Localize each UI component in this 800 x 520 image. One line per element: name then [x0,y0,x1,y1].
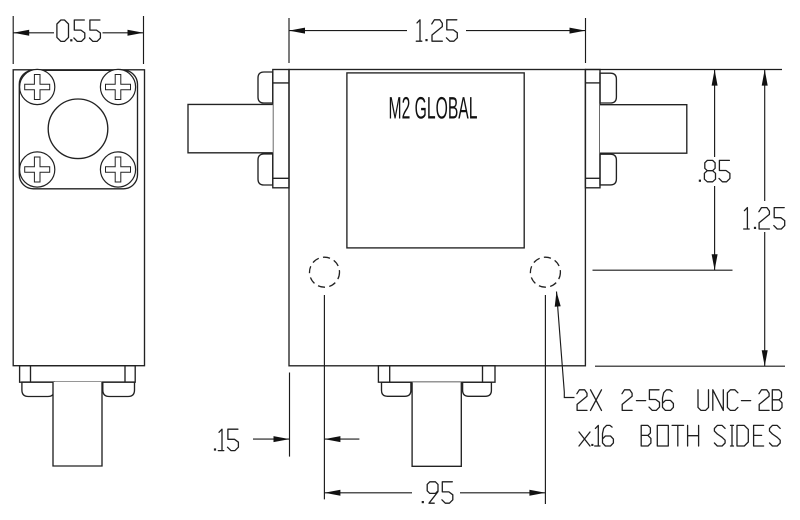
svg-text:M2 GLOBAL: M2 GLOBAL [389,91,478,126]
